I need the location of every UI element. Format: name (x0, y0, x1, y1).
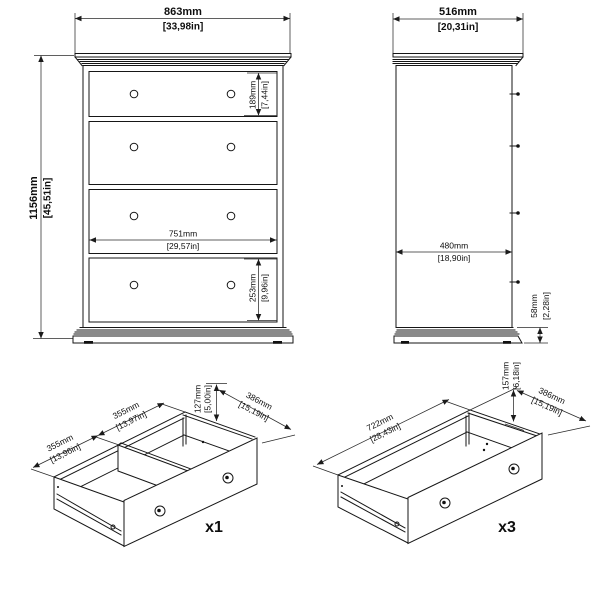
front-height-in-label: [45,51in] (43, 178, 54, 219)
top-drawer-mm-label: 189mm (248, 81, 258, 109)
plinth-in-label: [2,28in] (541, 292, 551, 320)
x1-quantity-label: x1 (205, 519, 223, 536)
furniture-dimension-diagram: 863mm [33,98in] 1156mm [45,51in] (0, 0, 600, 600)
x3-height-in-label: [6,18in] (511, 362, 521, 390)
drawer-left-side (54, 477, 124, 546)
side-view: 516mm [20,31in] 480mm [18,90in] (393, 6, 551, 344)
top-drawer-in-label: [7,44in] (260, 81, 270, 109)
screw-hole (202, 441, 204, 443)
side-depth-mm-label: 516mm (439, 6, 477, 18)
foot (401, 341, 409, 344)
foot (503, 341, 511, 344)
drawer-front-2 (89, 122, 277, 185)
dim-x1-depth: 386mm [15,19in] (219, 389, 295, 443)
crown-molding-side (393, 54, 523, 66)
dim-x3-height: 157mm [6,18in] (470, 362, 524, 431)
screw-hole (341, 485, 343, 487)
plinth-mm-label: 58mm (529, 294, 539, 318)
drawer-left-side (338, 475, 408, 543)
dim-side-overall-depth: 516mm [20,31in] (393, 6, 523, 53)
back-wall-top-edge (338, 410, 470, 475)
x1-height-in-label: [5,00in] (203, 385, 213, 413)
body-depth-in-label: [18,90in] (438, 253, 471, 263)
dim-x3-depth: 386mm [15,19in] (517, 384, 590, 435)
front-width-mm-label: 863mm (164, 6, 202, 18)
crown-molding (75, 54, 291, 66)
foot (84, 341, 93, 344)
dim-plinth-height: 58mm [2,28in] (517, 292, 551, 343)
inner-width-mm-label: 751mm (169, 229, 197, 239)
assembly-drawing-sheet: 863mm [33,98in] 1156mm [45,51in] (0, 0, 600, 600)
lower-drawer-mm-label: 253mm (248, 274, 258, 302)
side-depth-in-label: [20,31in] (438, 22, 479, 33)
front-width-in-label: [33,98in] (163, 22, 204, 33)
x3-quantity-label: x3 (498, 519, 516, 536)
dim-x3-width: 722mm [28,43in] (313, 400, 470, 476)
drawer-front-panel (408, 433, 542, 544)
drawer-x1-view: 355mm [13,96in] 355mm [13,97in] 127mm [5… (31, 384, 295, 547)
lower-drawer-in-label: [9,96in] (260, 274, 270, 302)
front-height-mm-label: 1156mm (28, 176, 40, 220)
x3-height-mm-label: 157mm (501, 362, 511, 390)
front-view: 863mm [33,98in] 1156mm [45,51in] (28, 6, 293, 344)
drawer-x3-view: 722mm [28,43in] 157mm [6,18in] 386mm [15… (313, 362, 590, 544)
base-plinth-side (394, 328, 522, 344)
inner-width-in-label: [29,57in] (167, 241, 200, 251)
screw-hole (483, 449, 485, 451)
foot (273, 341, 282, 344)
dim-x1-height: 127mm [5,00in] (193, 384, 228, 422)
screw-hole (57, 486, 59, 488)
side-panel (396, 66, 512, 328)
body-depth-mm-label: 480mm (440, 241, 468, 251)
x1-height-mm-label: 127mm (193, 385, 203, 413)
base-plinth-front (73, 328, 293, 344)
screw-hole (486, 443, 488, 445)
dim-front-overall-height: 1156mm [45,51in] (28, 56, 78, 339)
dim-front-overall-width: 863mm [33,98in] (75, 6, 290, 53)
